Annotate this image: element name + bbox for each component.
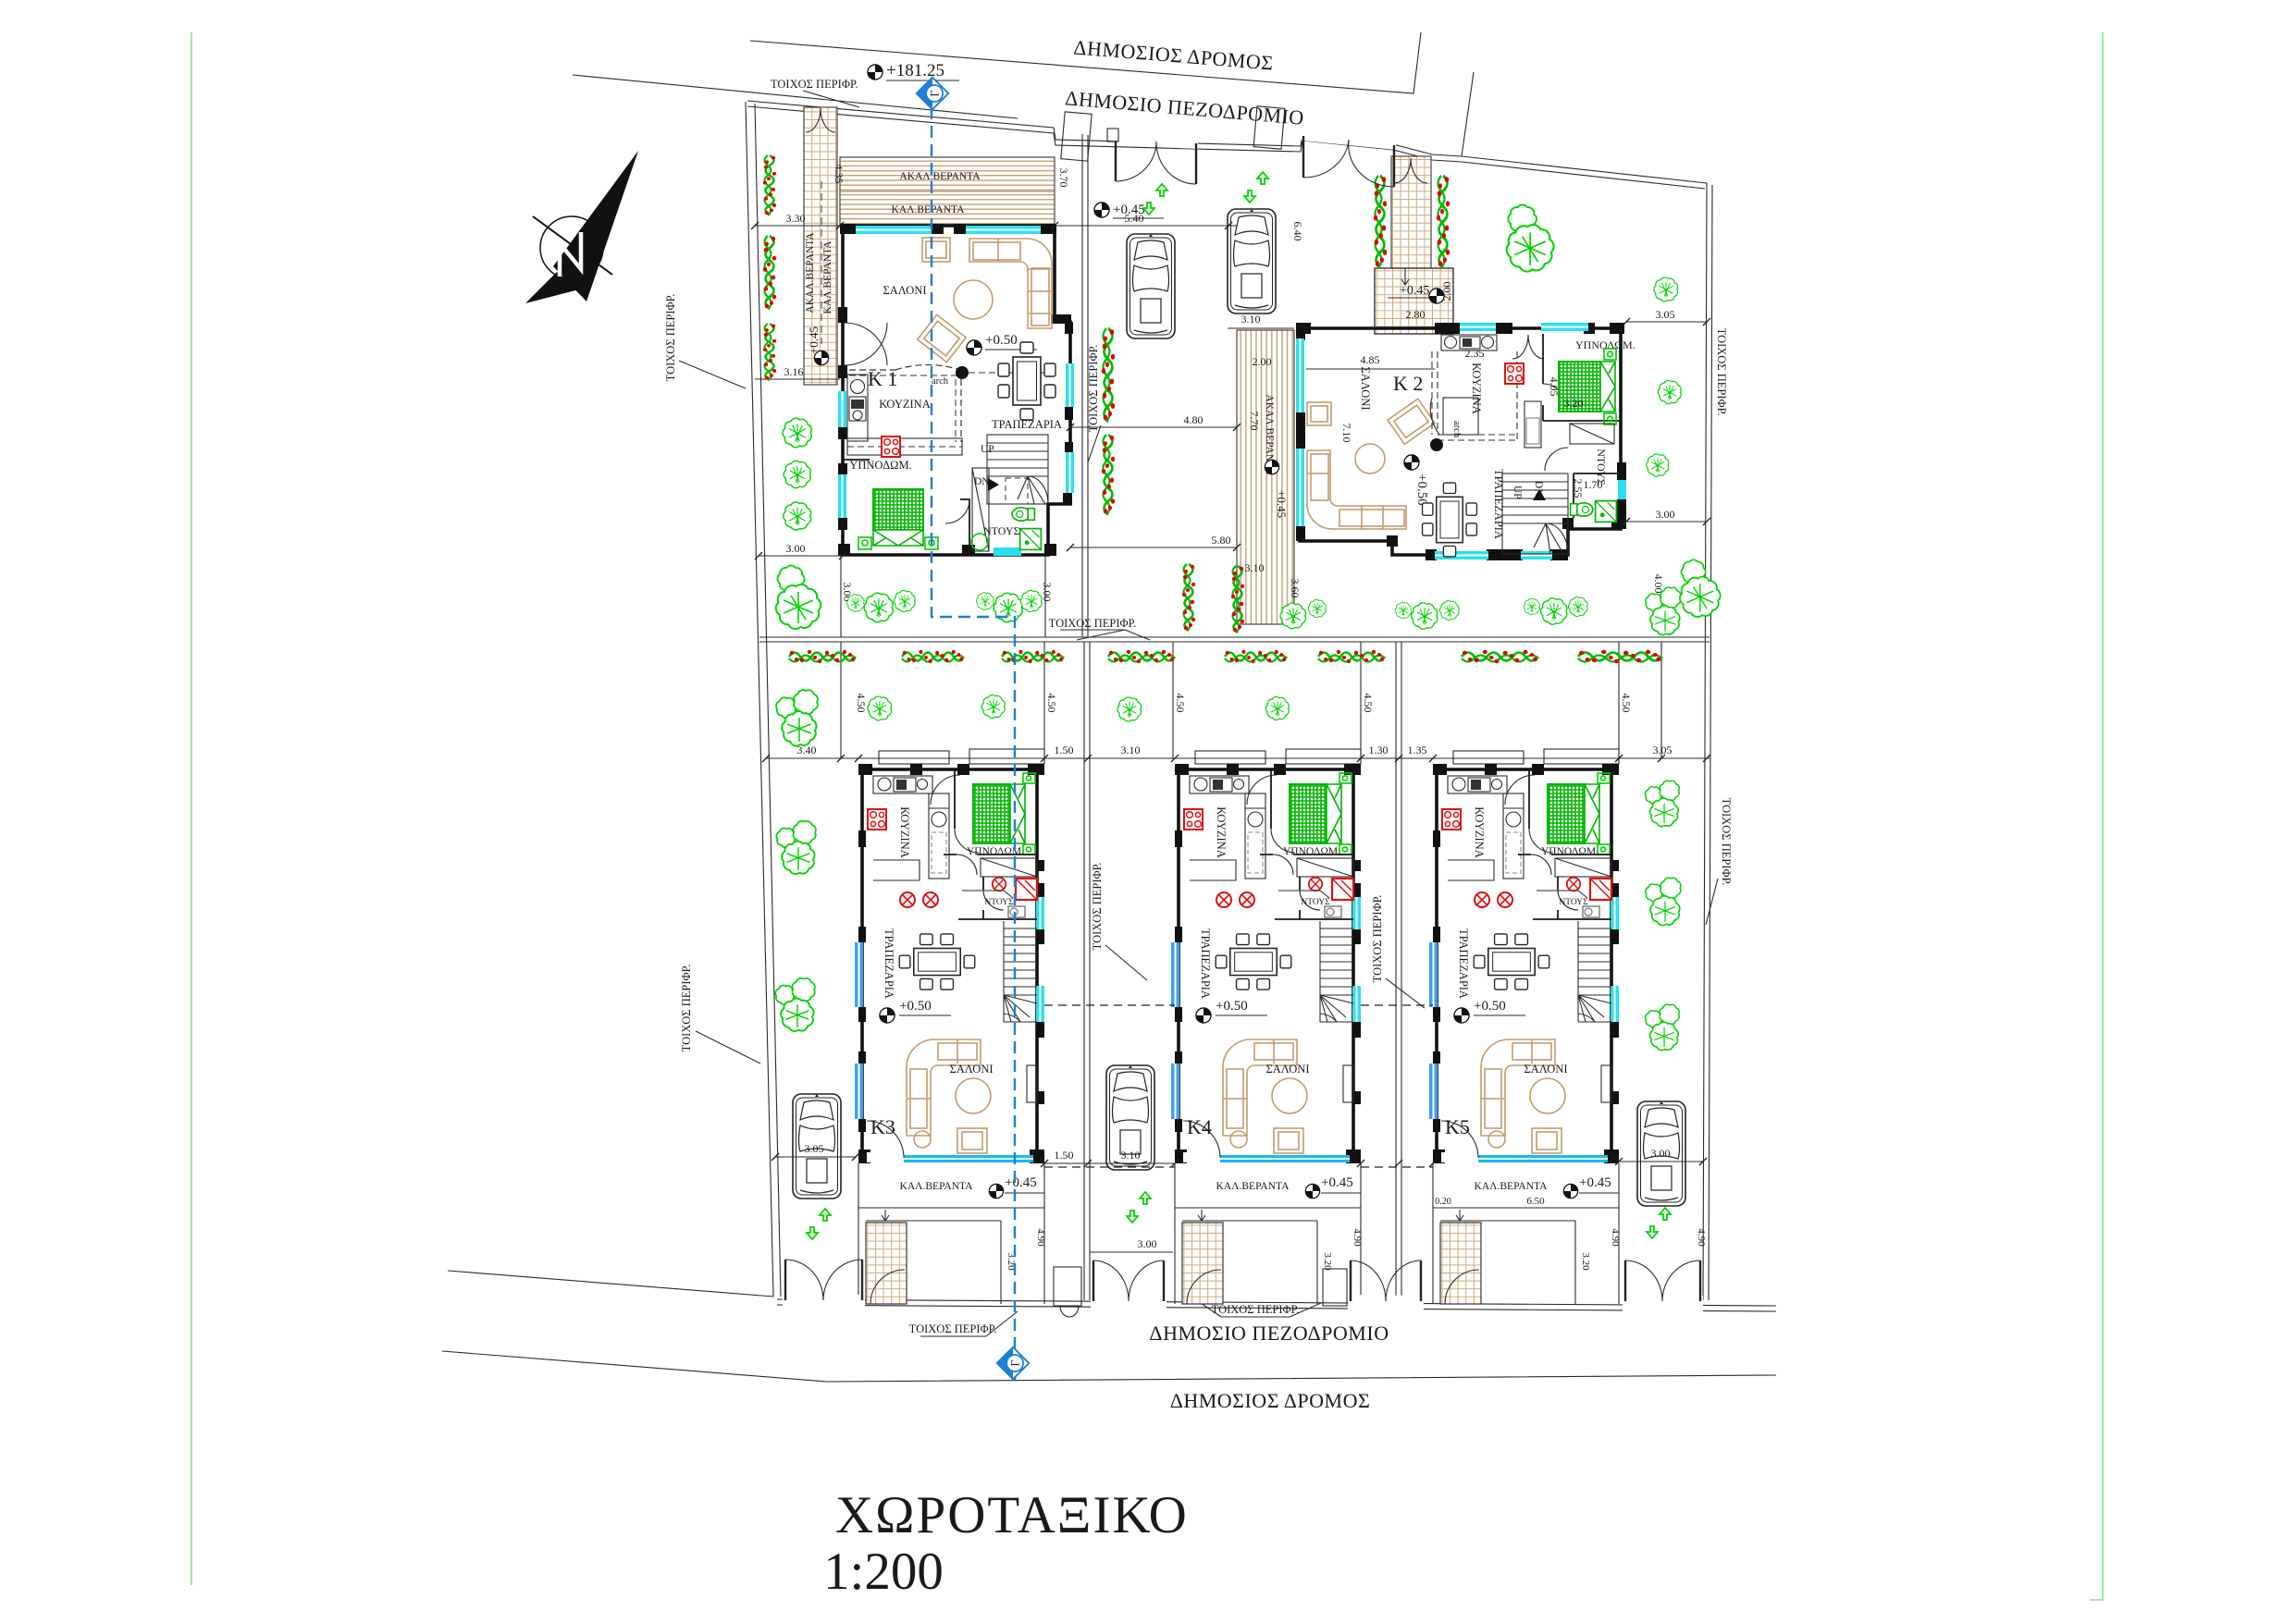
svg-text:6.40: 6.40 [1291,222,1304,241]
svg-text:3.30: 3.30 [786,212,806,225]
svg-text:+0.50: +0.50 [1414,473,1429,506]
svg-text:2.35: 2.35 [1465,347,1485,360]
svg-text:3.00: 3.00 [786,542,806,555]
svg-text:ΤΟΙΧΟΣ ΠΕΡΙΦΡ.: ΤΟΙΧΟΣ ΠΕΡΙΦΡ. [909,1322,997,1335]
svg-text:+0.50: +0.50 [985,333,1018,348]
svg-text:2.00: 2.00 [1253,355,1272,368]
svg-text:ΥΠΝΟΔΩΜ.: ΥΠΝΟΔΩΜ. [849,459,911,472]
svg-text:3.10: 3.10 [1241,313,1261,326]
svg-text:1:200: 1:200 [823,1543,944,1601]
svg-text:ΤΟΙΧΟΣ ΠΕΡΙΦΡ.: ΤΟΙΧΟΣ ΠΕΡΙΦΡ. [1371,895,1384,983]
svg-text:ΤΟΙΧΟΣ ΠΕΡΙΦΡ.: ΤΟΙΧΟΣ ΠΕΡΙΦΡ. [771,78,858,91]
svg-text:ΑΚΑΛ.ΒΕΡΑΝΤΑ: ΑΚΑΛ.ΒΕΡΑΝΤΑ [899,171,981,182]
svg-text:1.35: 1.35 [1408,744,1427,756]
svg-text:4.90: 4.90 [1035,1228,1046,1247]
svg-text:4.90: 4.90 [1696,1228,1707,1247]
svg-text:3.00: 3.00 [1041,583,1054,602]
svg-text:5.40: 5.40 [1125,212,1144,225]
svg-text:3.70: 3.70 [1057,168,1070,188]
svg-text:4.80: 4.80 [1184,413,1204,426]
svg-text:3.00: 3.00 [1651,1147,1671,1160]
svg-text:3.05: 3.05 [805,1142,824,1155]
svg-text:ΑΚΑΛ.ΒΕΡΑΝΤΑ: ΑΚΑΛ.ΒΕΡΑΝΤΑ [805,232,816,314]
svg-text:DN: DN [974,476,990,487]
svg-text:0.20: 0.20 [1435,1197,1451,1207]
svg-text:ΣΑΛΟΝΙ: ΣΑΛΟΝΙ [883,284,926,297]
svg-text:3.16: 3.16 [784,365,804,378]
svg-text:+181.25: +181.25 [886,61,944,80]
svg-text:+0.45: +0.45 [807,326,821,354]
svg-text:UP: UP [1512,486,1523,499]
svg-text:ΚΟΥΖΙΝΑ: ΚΟΥΖΙΝΑ [898,806,911,857]
svg-text:ΧΩΡΟΤΑΞΙΚΟ: ΧΩΡΟΤΑΞΙΚΟ [835,1486,1189,1544]
svg-text:2.00: 2.00 [1440,282,1453,301]
svg-text:ΤΡΑΠΕΖΑΡΙΑ: ΤΡΑΠΕΖΑΡΙΑ [1492,469,1505,539]
svg-text:ΤΟΙΧΟΣ ΠΕΡΙΦΡ.: ΤΟΙΧΟΣ ΠΕΡΙΦΡ. [664,294,677,382]
svg-text:ΚΑΛ.ΒΕΡΑΝΤΑ: ΚΑΛ.ΒΕΡΑΝΤΑ [900,1181,974,1192]
svg-text:ΚΑΛ.ΒΕΡΑΝΤΑ: ΚΑΛ.ΒΕΡΑΝΤΑ [822,240,833,314]
svg-text:ΤΡΑΠΕΖΑΡΙΑ: ΤΡΑΠΕΖΑΡΙΑ [883,928,895,999]
svg-text:ΝΤΟΥΣ: ΝΤΟΥΣ [983,524,1020,537]
svg-text:2.80: 2.80 [1406,308,1426,321]
svg-text:7.70: 7.70 [1248,412,1261,431]
svg-text:ΤΟΙΧΟΣ ΠΕΡΙΦΡ.: ΤΟΙΧΟΣ ΠΕΡΙΦΡ. [1091,863,1104,951]
svg-text:ΤΟΙΧΟΣ ΠΕΡΙΦΡ.: ΤΟΙΧΟΣ ΠΕΡΙΦΡ. [680,965,693,1052]
svg-text:6.50: 6.50 [1526,1196,1545,1207]
svg-text:ΚΟΥΖΙΝΑ: ΚΟΥΖΙΝΑ [879,398,930,411]
svg-text:4.50: 4.50 [1174,694,1187,713]
svg-text:+0.45: +0.45 [1275,490,1289,518]
svg-text:7.10: 7.10 [1340,424,1353,443]
svg-text:+0.50: +0.50 [899,999,932,1014]
svg-text:4.50: 4.50 [1045,694,1058,713]
svg-text:+0.45: +0.45 [1400,284,1429,298]
svg-text:ΔΗΜΟΣΙΟΣ ΔΡΟΜΟΣ: ΔΗΜΟΣΙΟΣ ΔΡΟΜΟΣ [1170,1389,1371,1412]
svg-text:3.00: 3.00 [1656,508,1675,521]
svg-text:4.50: 4.50 [1362,694,1375,713]
svg-text:3.10: 3.10 [1245,561,1265,574]
svg-text:3.00: 3.00 [1138,1237,1157,1250]
svg-text:4.50: 4.50 [1620,694,1633,713]
svg-text:ΔΗΜΟΣΙΟ ΠΕΖΟΔΡΟΜΙΟ: ΔΗΜΟΣΙΟ ΠΕΖΟΔΡΟΜΙΟ [1149,1322,1389,1345]
svg-text:ΣΑΛΟΝΙ: ΣΑΛΟΝΙ [949,1063,993,1076]
svg-text:K4: K4 [1187,1115,1212,1138]
svg-text:3.05: 3.05 [1653,744,1673,756]
svg-text:ΤΟΙΧΟΣ ΠΕΡΙΦΡ.: ΤΟΙΧΟΣ ΠΕΡΙΦΡ. [1720,798,1733,886]
svg-text:1.30: 1.30 [1369,744,1389,756]
svg-text:4.05: 4.05 [1548,377,1561,397]
svg-text:arch: arch [1451,421,1462,438]
svg-text:ΚΟΥΖΙΝΑ: ΚΟΥΖΙΝΑ [1470,363,1483,413]
svg-text:K5: K5 [1445,1115,1470,1138]
svg-text:K3: K3 [870,1115,895,1138]
svg-text:5.80: 5.80 [1212,534,1231,547]
svg-text:3.10: 3.10 [1121,744,1141,756]
svg-text:4.50: 4.50 [855,694,868,713]
svg-text:ΤΟΙΧΟΣ ΠΕΡΙΦΡ.: ΤΟΙΧΟΣ ΠΕΡΙΦΡ. [1087,345,1100,433]
svg-text:1.70: 1.70 [1584,478,1603,491]
svg-text:3.20: 3.20 [1564,397,1584,410]
svg-text:4.35: 4.35 [833,165,846,184]
svg-text:ΥΠΝΟΔΩΜ.: ΥΠΝΟΔΩΜ. [1575,338,1636,351]
svg-text:1.50: 1.50 [1055,1149,1074,1162]
svg-text:ΤΟΙΧΟΣ ΠΕΡΙΦΡ.: ΤΟΙΧΟΣ ΠΕΡΙΦΡ. [1212,1303,1300,1316]
svg-text:3.05: 3.05 [1656,308,1675,321]
svg-text:ΤΟΙΧΟΣ ΠΕΡΙΦΡ.: ΤΟΙΧΟΣ ΠΕΡΙΦΡ. [1049,617,1137,630]
svg-text:3.10: 3.10 [1121,1149,1141,1162]
svg-text:UP: UP [981,444,994,455]
svg-text:1.50: 1.50 [1055,744,1074,756]
svg-text:ΤΟΙΧΟΣ ΠΕΡΙΦΡ.: ΤΟΙΧΟΣ ΠΕΡΙΦΡ. [1715,328,1728,416]
svg-text:K 1: K 1 [868,367,897,390]
svg-text:+0.45: +0.45 [1005,1175,1037,1190]
svg-text:arch: arch [932,376,949,387]
svg-text:ΚΑΛ.ΒΕΡΑΝΤΑ: ΚΑΛ.ΒΕΡΑΝΤΑ [892,204,966,215]
svg-text:ΣΑΛΟΝΙ: ΣΑΛΟΝΙ [1359,366,1372,410]
svg-text:K 2: K 2 [1393,372,1423,395]
svg-text:3.60: 3.60 [1289,579,1302,598]
svg-text:4.85: 4.85 [1361,353,1380,366]
